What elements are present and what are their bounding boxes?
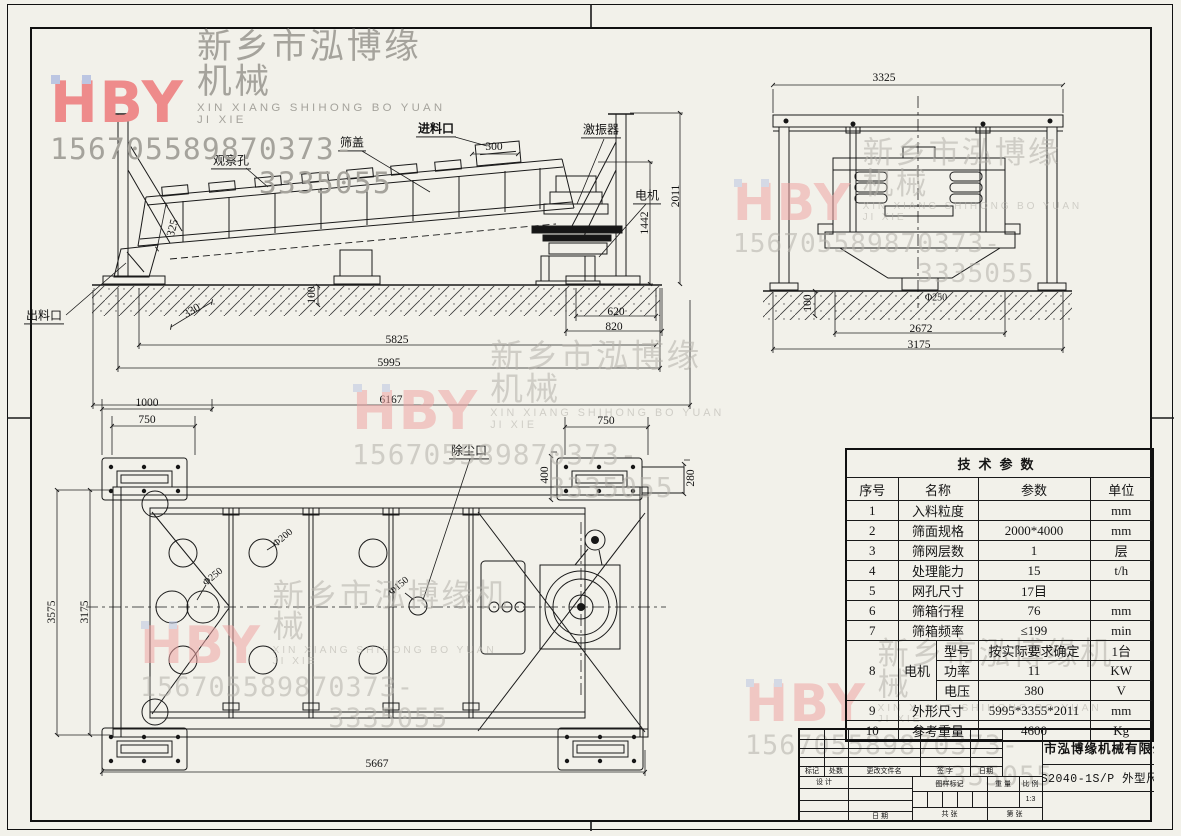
logo-accent-square (169, 621, 177, 629)
dim-phi250-end: Φ250 (925, 293, 947, 304)
watermark-phone-mobile: 15670558987 (50, 132, 259, 200)
logo-accent-square (761, 179, 769, 187)
motor-assembly (536, 256, 600, 285)
watermark-company-cn: 新乡市泓博缘机械 (863, 138, 1093, 199)
tb-label-drawing-mark: 图样标记 (912, 776, 987, 791)
table-row: 5网孔尺寸17目 (846, 581, 1153, 601)
dim-100-side: 100 (306, 286, 318, 303)
dim-1000: 1000 (136, 397, 159, 409)
tb-label-weight: 重 量 (987, 776, 1019, 791)
watermark: HBY 新乡市泓博缘机械 XIN XIANG SHIHONG BO YUAN J… (352, 340, 732, 504)
dim-5667: 5667 (366, 758, 389, 770)
watermark-company-en: XIN XIANG SHIHONG BO YUAN JI XIE (273, 645, 510, 667)
tb-label-scale: 比 例 (1019, 776, 1042, 791)
watermark-company-en: XIN XIANG SHIHONG BO YUAN JI XIE (490, 407, 732, 431)
tb-scale-value: 1:3 (1019, 791, 1042, 807)
logo-accent-square (382, 384, 391, 393)
tb-label-design: 设 计 (800, 776, 848, 788)
col-header-unit: 单位 (1090, 478, 1153, 501)
table-row: 3筛网层数1层 (846, 541, 1153, 561)
tb-label-sheet-total: 共 张 (912, 807, 987, 820)
logo-text: HBY (140, 616, 262, 676)
table-row-motor: 8 电机 型号按实际要求确定1台 (846, 641, 1153, 661)
tb-label-sheet-no: 第 张 (987, 807, 1042, 820)
dim-100-end: 100 (802, 294, 814, 311)
logo-accent-square (51, 75, 60, 84)
dim-3175-end: 3175 (908, 339, 931, 351)
label-motor: 电机 (633, 189, 661, 204)
hby-logo: HBY (733, 182, 852, 225)
hby-logo: HBY (140, 625, 262, 669)
watermark-company-en: XIN XIANG SHIHONG BO YUAN JI XIE (863, 201, 1093, 223)
watermark-phone-mobile: 15670558987 (733, 229, 917, 289)
dim-3575: 3575 (46, 601, 58, 624)
col-header-name: 名称 (898, 478, 978, 501)
table-row: 2筛面规格2000*4000mm (846, 521, 1153, 541)
dim-3175-top: 3175 (79, 601, 91, 624)
tb-drawing-title: FHS2040-1S/P 外型尺寸 (1042, 764, 1154, 791)
vibrator-plan (540, 530, 620, 649)
dim-2672: 2672 (910, 323, 933, 335)
logo-accent-square (746, 679, 754, 687)
tb-company-name: 新乡市泓博缘机械有限公司 (1042, 730, 1154, 764)
watermark-phone-tel: 0373-3335055 (328, 672, 510, 734)
table-row: 6筛箱行程76mm (846, 601, 1153, 621)
logo-accent-square (353, 384, 362, 393)
logo-accent-square (82, 75, 91, 84)
tb-label-date: 日期 (970, 766, 1002, 776)
logo-text: HBY (352, 379, 479, 442)
dim-2011: 2011 (670, 185, 682, 208)
drawing-sheet: 观察孔 筛盖 进料口 激振器 电机 出料口 300 325 330 620 82… (0, 0, 1181, 836)
col-header-no: 序号 (846, 478, 898, 501)
watermark-phone-tel: 0373-3335055 (259, 132, 450, 200)
tb-label-sign: 签 字 (920, 766, 970, 776)
hby-logo: HBY (50, 79, 185, 128)
watermark: HBY 新乡市泓博缘机械 XIN XIANG SHIHONG BO YUAN J… (733, 138, 1093, 289)
logo-accent-square (734, 179, 742, 187)
watermark-company-cn: 新乡市泓博缘机械 (197, 30, 450, 99)
watermark: HBY 新乡市泓博缘机械 XIN XIANG SHIHONG BO YUAN J… (50, 30, 450, 200)
watermark-phone-mobile: 15670558987 (140, 672, 328, 734)
watermark-company-cn: 新乡市泓博缘机械 (490, 340, 732, 405)
vibrator-assembly (532, 176, 622, 254)
tb-label-count: 处数 (824, 766, 848, 776)
logo-text: HBY (733, 173, 852, 232)
hby-logo: HBY (352, 388, 479, 434)
watermark-phone-tel: 0373-3335055 (917, 229, 1093, 289)
watermark-phone-tel: 0373-3335055 (549, 438, 732, 504)
title-block: 标记 处数 更改文件名 签 字 日期 设 计 日 期 图样标记 重 量 比 例 … (798, 728, 1152, 822)
dim-750-left: 750 (138, 414, 155, 426)
watermark-phone-mobile: 15670558987 (352, 438, 549, 504)
col-header-value: 参数 (978, 478, 1090, 501)
table-row: 4处理能力15t/h (846, 561, 1153, 581)
watermark: HBY 新乡市泓博缘机械 XIN XIANG SHIHONG BO YUAN J… (140, 580, 510, 734)
watermark-company-cn: 新乡市泓博缘机械 (273, 580, 510, 643)
table-row: 9外形尺寸5995*3355*2011mm (846, 701, 1153, 721)
tech-parameters-table: 技术参数 序号 名称 参数 单位 1入料粒度mm 2筛面规格2000*4000m… (845, 448, 1154, 742)
table-title: 技术参数 (846, 449, 1153, 478)
dim-300: 300 (485, 141, 502, 153)
tb-label-date2: 日 期 (848, 811, 912, 820)
label-vibrator: 激振器 (581, 123, 621, 138)
tb-label-mark: 标记 (800, 766, 824, 776)
dim-620: 620 (607, 306, 624, 318)
dim-1442: 1442 (639, 212, 651, 235)
tb-label-change-doc: 更改文件名 (848, 766, 920, 776)
dim-3325: 3325 (873, 72, 896, 84)
logo-accent-square (774, 679, 782, 687)
label-discharge-outlet: 出料口 (24, 309, 64, 324)
table-row: 1入料粒度mm (846, 501, 1153, 521)
logo-text: HBY (50, 70, 185, 136)
table-row: 7筛箱频率≤199min (846, 621, 1153, 641)
logo-accent-square (141, 621, 149, 629)
dim-820: 820 (605, 321, 622, 333)
watermark-company-en: XIN XIANG SHIHONG BO YUAN JI XIE (197, 102, 450, 126)
